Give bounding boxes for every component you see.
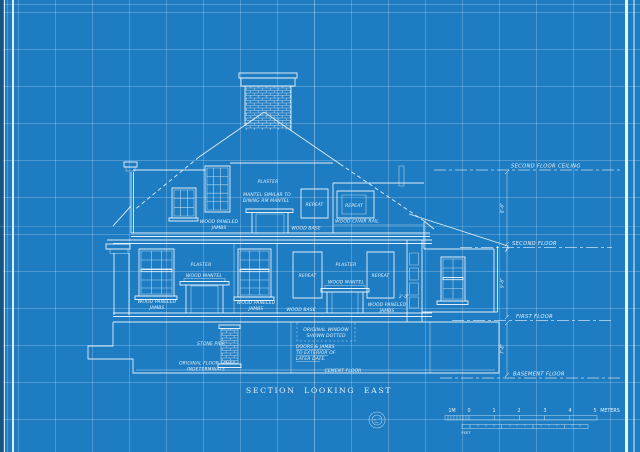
label-doors-note-3: LATER DATE. — [296, 356, 326, 362]
first-floor-section: WOOD PANELED JAMBS PLASTER WOOD MANTEL W… — [106, 222, 432, 322]
label-2f-repeat: REPEAT — [306, 202, 325, 208]
chimney — [239, 73, 297, 131]
window-wing — [437, 257, 468, 305]
scale-tick-2: 2 — [517, 408, 520, 414]
eave-cornice — [106, 244, 130, 249]
survey-stamp — [369, 412, 385, 428]
label-second-floor-ceiling: SECOND FLOOR CEILING — [511, 164, 581, 170]
scale-bar: 1M 0 1 2 3 4 5 METERS FEET — [445, 408, 620, 435]
right-wing: 2'-0" — [399, 246, 497, 312]
dim-ceiling-height: 8'-6" — [500, 203, 505, 213]
panel-1f-repeat-right: REPEAT — [367, 252, 394, 298]
label-first-floor: FIRST FLOOR — [516, 314, 553, 320]
label-cement-floor: CEMENT FLOOR — [325, 368, 362, 374]
scale-tick-5: 5 — [593, 408, 596, 414]
blueprint-canvas: WOOD PANELED JAMBS PLASTER MANTEL SIMILA… — [0, 0, 640, 452]
dormer-cornice — [124, 162, 137, 167]
label-mantel-note-2: DINING RM MANTEL — [243, 198, 290, 204]
label-basement-floor: BASEMENT FLOOR — [513, 372, 565, 378]
label-1f-mid-jambs-1: WOOD PANELED — [237, 300, 276, 306]
label-wood-mantel-left: WOOD MANTEL — [186, 273, 223, 279]
label-doors-note-2: TO EXTERIOR OF — [296, 350, 336, 356]
label-1f-right-jambs-2: JAMBS — [379, 308, 395, 314]
dim-wing-wall: 2'-0" — [399, 294, 409, 299]
second-floor-section: WOOD PANELED JAMBS PLASTER MANTEL SIMILA… — [124, 162, 430, 237]
label-stone-pier: STONE PIER — [197, 341, 225, 347]
label-1f-left-jambs-2: JAMBS — [149, 305, 165, 311]
label-2f-plaster: PLASTER — [258, 179, 279, 185]
window-1f-left — [135, 249, 177, 300]
label-1f-right-jambs-1: WOOD PANELED — [368, 302, 407, 308]
label-2f-jambs-1: WOOD PANELED — [200, 219, 239, 225]
label-1f-wood-base: WOOD BASE — [286, 307, 315, 313]
label-chair-rail: WOOD CHAIR RAIL — [335, 219, 379, 225]
dim-first-floor-height: 9'-6" — [500, 278, 505, 288]
label-wood-mantel-right: WOOD MANTEL — [328, 280, 365, 286]
window-2f-small — [169, 188, 198, 221]
label-2f-right-repeat: REPEAT — [345, 203, 364, 209]
window-2f-tall — [205, 166, 230, 212]
window-1f-middle — [234, 249, 274, 301]
scale-tick-0: 0 — [467, 408, 470, 414]
panel-1f-repeat-left: REPEAT — [293, 252, 322, 298]
fireplace-2f — [246, 209, 293, 233]
flue-wall — [407, 222, 424, 322]
drawing-title: SECTION LOOKING EAST — [246, 386, 392, 395]
section-drawing: WOOD PANELED JAMBS PLASTER MANTEL SIMILA… — [0, 0, 640, 452]
dim-basement-height: 7'-8" — [500, 344, 505, 354]
label-1f-repeat-left: REPEAT — [299, 273, 318, 279]
scale-tick-1m: 1M — [448, 408, 455, 414]
label-1f-mid-jambs-2: JAMBS — [248, 306, 264, 312]
scale-tick-3: 3 — [543, 408, 546, 414]
label-floor-level-2: INDETERMINATE. — [187, 367, 227, 373]
scale-unit-meters: METERS — [600, 408, 620, 414]
label-floor-level-1: ORIGINAL FLOOR LEVEL — [179, 361, 235, 367]
room-2f-right: REPEAT WOOD CHAIR RAIL — [333, 166, 424, 233]
label-2f-jambs-2: JAMBS — [211, 225, 227, 231]
label-original-window-1: ORIGINAL WINDOW — [303, 327, 349, 333]
label-1f-plaster-left: PLASTER — [191, 262, 212, 268]
scale-unit-feet: FEET — [461, 430, 471, 435]
fireplace-1f-left — [180, 279, 229, 314]
foundation: STONE PIER ORIGINAL WINDOW SHOWN DOTTED … — [88, 322, 499, 374]
label-mantel-note-1: MANTEL SIMILAR TO — [243, 192, 291, 198]
label-1f-plaster-right: PLASTER — [336, 262, 357, 268]
scale-tick-4: 4 — [568, 408, 571, 414]
label-2f-wood-base: WOOD BASE — [291, 226, 320, 232]
panel-2f-repeat: REPEAT — [301, 189, 328, 218]
label-1f-left-jambs-1: WOOD PANELED — [138, 299, 177, 305]
fireplace-1f-right — [321, 286, 369, 314]
reference-lines: SECOND FLOOR CEILING SECOND FLOOR FIRST … — [434, 164, 623, 379]
label-1f-repeat-right: REPEAT — [372, 273, 391, 279]
scale-tick-1: 1 — [492, 408, 495, 414]
label-doors-note-1: DOORS & JAMBS — [296, 344, 335, 350]
label-original-window-2: SHOWN DOTTED — [306, 333, 346, 339]
label-second-floor: SECOND FLOOR — [512, 241, 557, 247]
